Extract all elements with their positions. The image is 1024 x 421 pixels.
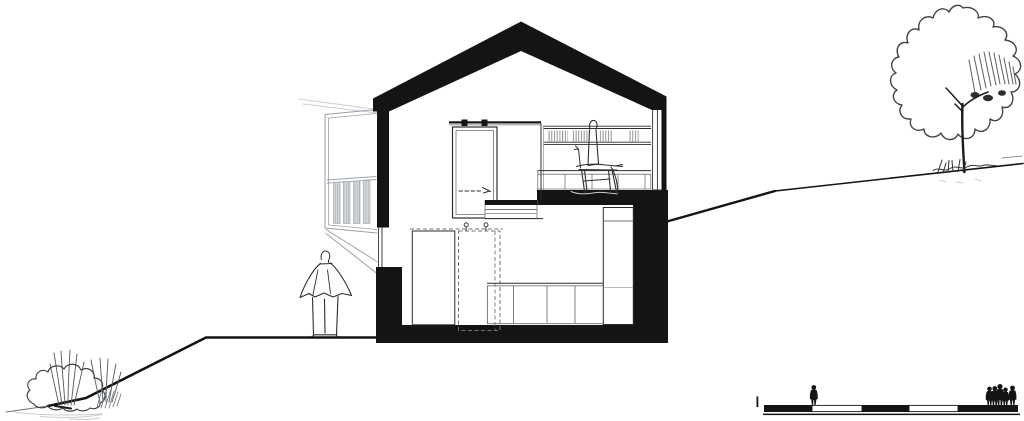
scale-bar xyxy=(757,384,1021,415)
balcony-screen xyxy=(325,110,377,274)
right-wall-lower xyxy=(633,205,668,327)
standing-person xyxy=(300,251,352,338)
ground-scribbles xyxy=(14,412,102,420)
wardrobe xyxy=(412,231,455,325)
left-wall-upper xyxy=(377,110,389,228)
left-window xyxy=(379,228,382,268)
balcony-slats xyxy=(334,181,371,224)
lower-floor-interior xyxy=(410,208,633,331)
scale-figure-single xyxy=(810,385,818,405)
tree-canopy xyxy=(890,5,1020,139)
house-structure xyxy=(373,22,668,344)
gable-roof xyxy=(373,22,667,112)
scale-bar-segment-filled xyxy=(958,405,1018,412)
bush-base xyxy=(55,406,71,409)
left-wall-lower xyxy=(376,267,402,327)
section-svg xyxy=(0,0,1024,421)
canopy-hatching xyxy=(969,52,1016,93)
tall-cabinet xyxy=(603,208,633,325)
door-hanger xyxy=(482,120,488,127)
tall-grass xyxy=(50,350,121,405)
scale-bar-segment-filled xyxy=(764,405,812,412)
tree-trunk xyxy=(946,88,988,172)
right-glazed-wall xyxy=(652,97,667,192)
hanger-hooks xyxy=(464,223,488,232)
scale-bar-baseline xyxy=(763,414,1020,416)
scale-bar-segment-empty xyxy=(909,405,958,411)
ground-line-right xyxy=(667,164,1023,222)
bush-with-grasses xyxy=(14,350,121,420)
ground-slab xyxy=(376,325,668,343)
split-level-steps xyxy=(485,200,543,219)
dashed-wardrobe-outline xyxy=(459,231,501,331)
opening-direction-arrow xyxy=(459,188,491,194)
kitchen-counter xyxy=(487,283,603,323)
books xyxy=(547,130,639,143)
balcony-struts xyxy=(326,230,377,274)
tree-base-grass xyxy=(933,156,1022,183)
door-hanger xyxy=(462,120,468,127)
scale-bar-segment-empty xyxy=(812,405,862,411)
scale-figure-group xyxy=(986,384,1017,407)
scale-bar-tick xyxy=(757,397,759,408)
scale-bar-segment-filled xyxy=(862,405,909,412)
section-drawing xyxy=(0,0,1024,421)
tree xyxy=(890,5,1022,183)
